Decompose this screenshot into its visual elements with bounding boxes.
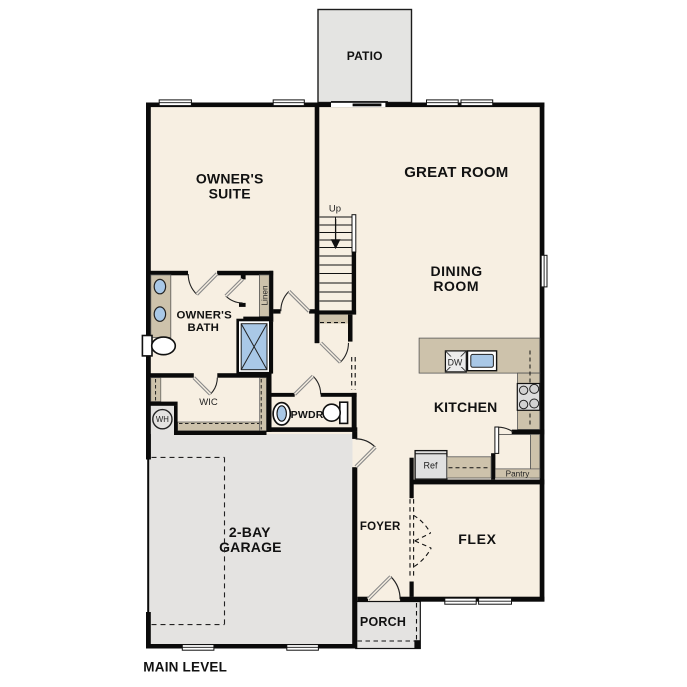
- svg-text:FLEX: FLEX: [458, 531, 496, 547]
- svg-text:WIC: WIC: [199, 397, 218, 408]
- svg-text:WH: WH: [156, 415, 169, 424]
- svg-text:OWNER'S: OWNER'S: [196, 171, 264, 187]
- svg-text:PORCH: PORCH: [360, 615, 406, 629]
- svg-text:DINING: DINING: [430, 263, 482, 279]
- svg-text:OWNER'S: OWNER'S: [177, 310, 233, 322]
- svg-text:Ref: Ref: [423, 461, 438, 471]
- svg-text:FOYER: FOYER: [360, 521, 401, 533]
- svg-text:Pantry: Pantry: [506, 470, 531, 479]
- svg-text:MAIN LEVEL: MAIN LEVEL: [143, 659, 227, 674]
- svg-text:ROOM: ROOM: [433, 278, 479, 294]
- svg-text:2-BAY: 2-BAY: [229, 524, 271, 540]
- svg-text:PATIO: PATIO: [347, 49, 383, 63]
- svg-text:Up: Up: [329, 204, 341, 215]
- svg-text:PWDR: PWDR: [291, 409, 324, 421]
- svg-text:GREAT ROOM: GREAT ROOM: [404, 164, 508, 181]
- svg-text:GARAGE: GARAGE: [219, 539, 282, 555]
- svg-text:SUITE: SUITE: [209, 186, 251, 202]
- svg-text:BATH: BATH: [188, 322, 220, 334]
- svg-text:DW: DW: [448, 358, 463, 368]
- svg-text:Linen: Linen: [260, 285, 269, 305]
- svg-text:KITCHEN: KITCHEN: [434, 399, 498, 415]
